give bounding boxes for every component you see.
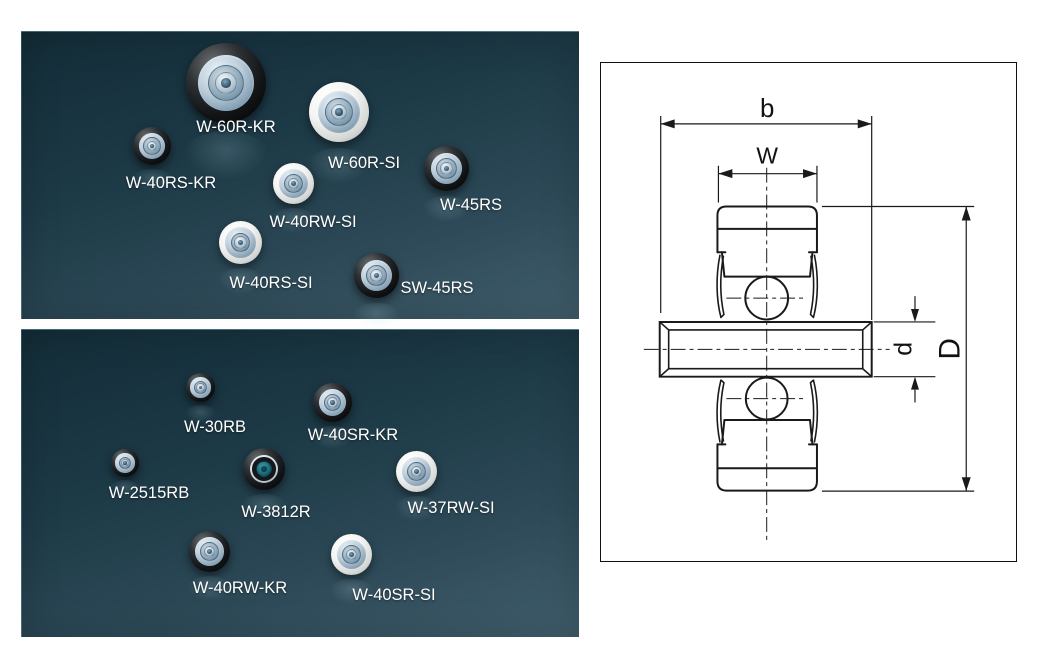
part-label-w-40rw-kr: W-40RW-KR: [193, 579, 287, 597]
dim-label-outer-diameter: D: [933, 338, 966, 360]
part-label-w-30rb: W-30RB: [184, 418, 246, 436]
dim-label-w: W: [756, 143, 778, 169]
product-photo-w-40rw-kr: [189, 531, 230, 572]
bearing-shield-top-left: [717, 255, 724, 317]
wheel-axle-hole: [330, 400, 335, 405]
product-photo-sw-45rs: [354, 253, 399, 298]
part-label-w-60r-si: W-60R-SI: [328, 154, 400, 172]
product-photo-w-60r-si: [309, 82, 369, 142]
dim-w-arrow-left: [718, 169, 732, 178]
part-label-w-3812r: W-3812R: [241, 503, 310, 521]
product-photo-w-2515rb: [111, 449, 139, 477]
part-label-w-40sr-si: W-40SR-SI: [352, 586, 435, 604]
dimension-diagram: b W D d: [601, 63, 1015, 560]
product-photo-w-30rb: [186, 373, 215, 402]
product-photo-w-40rs-si: [219, 221, 262, 264]
wheel-axle-hole: [349, 552, 354, 557]
dim-d-shaft-arrow-top: [911, 309, 919, 322]
tire-bottom-taper: [722, 420, 813, 444]
wheel-axle-hole: [335, 108, 342, 115]
dim-label-shaft-diameter: d: [890, 342, 918, 356]
product-photo-w-40rw-si: [273, 163, 314, 204]
wheel-axle-hole: [221, 78, 231, 88]
product-photo-w-40sr-kr: [313, 383, 352, 422]
tire-top-taper: [722, 252, 813, 276]
product-photo-w-40sr-si: [331, 534, 372, 575]
product-photo-w-45rs: [424, 146, 469, 191]
dim-b-arrow-right: [858, 119, 872, 128]
dim-d-outer-arrow-top: [962, 207, 971, 221]
product-panel-top: W-60R-KR W-40RS-KR W-60R-SI W-40RW-SI: [21, 31, 579, 319]
dim-label-b: b: [760, 95, 774, 123]
product-photo-w-37rw-si: [396, 451, 437, 492]
bearing-shield-top-right: [810, 255, 817, 317]
wheel-axle-hole: [123, 461, 126, 464]
wheel-axle-hole: [291, 181, 296, 186]
part-label-w-2515rb: W-2515RB: [109, 484, 189, 502]
product-photo-w-3812r: [243, 448, 285, 490]
part-label-w-40rs-si: W-40RS-SI: [229, 274, 312, 292]
part-label-w-60r-kr: W-60R-KR: [196, 118, 275, 136]
part-label-w-37rw-si: W-37RW-SI: [407, 499, 494, 517]
dimension-diagram-box: b W D d: [600, 62, 1017, 562]
dim-d-outer-arrow-bottom: [962, 477, 971, 491]
dim-d-shaft-arrow-bottom: [911, 377, 919, 390]
product-photo-w-40rs-kr: [133, 127, 171, 165]
dim-w-arrow-right: [803, 169, 817, 178]
dim-w-extension-lines: [718, 166, 817, 203]
part-label-w-40rs-kr: W-40RS-KR: [126, 174, 216, 192]
product-photo-w-60r-kr: [186, 43, 266, 123]
part-label-w-40sr-kr: W-40SR-KR: [308, 426, 398, 444]
dim-b-arrow-left: [661, 119, 675, 128]
catalog-page: W-60R-KR W-40RS-KR W-60R-SI W-40RW-SI: [0, 0, 1050, 661]
wheel-axle-hole: [414, 469, 419, 474]
part-label-w-45rs: W-45RS: [440, 196, 502, 214]
wheel-axle-hole: [207, 549, 212, 554]
product-panel-bottom: W-30RB W-40SR-KR W-2515RB W-3812R: [21, 329, 579, 637]
part-label-sw-45rs: SW-45RS: [400, 279, 473, 297]
part-label-w-40rw-si: W-40RW-SI: [269, 213, 356, 231]
